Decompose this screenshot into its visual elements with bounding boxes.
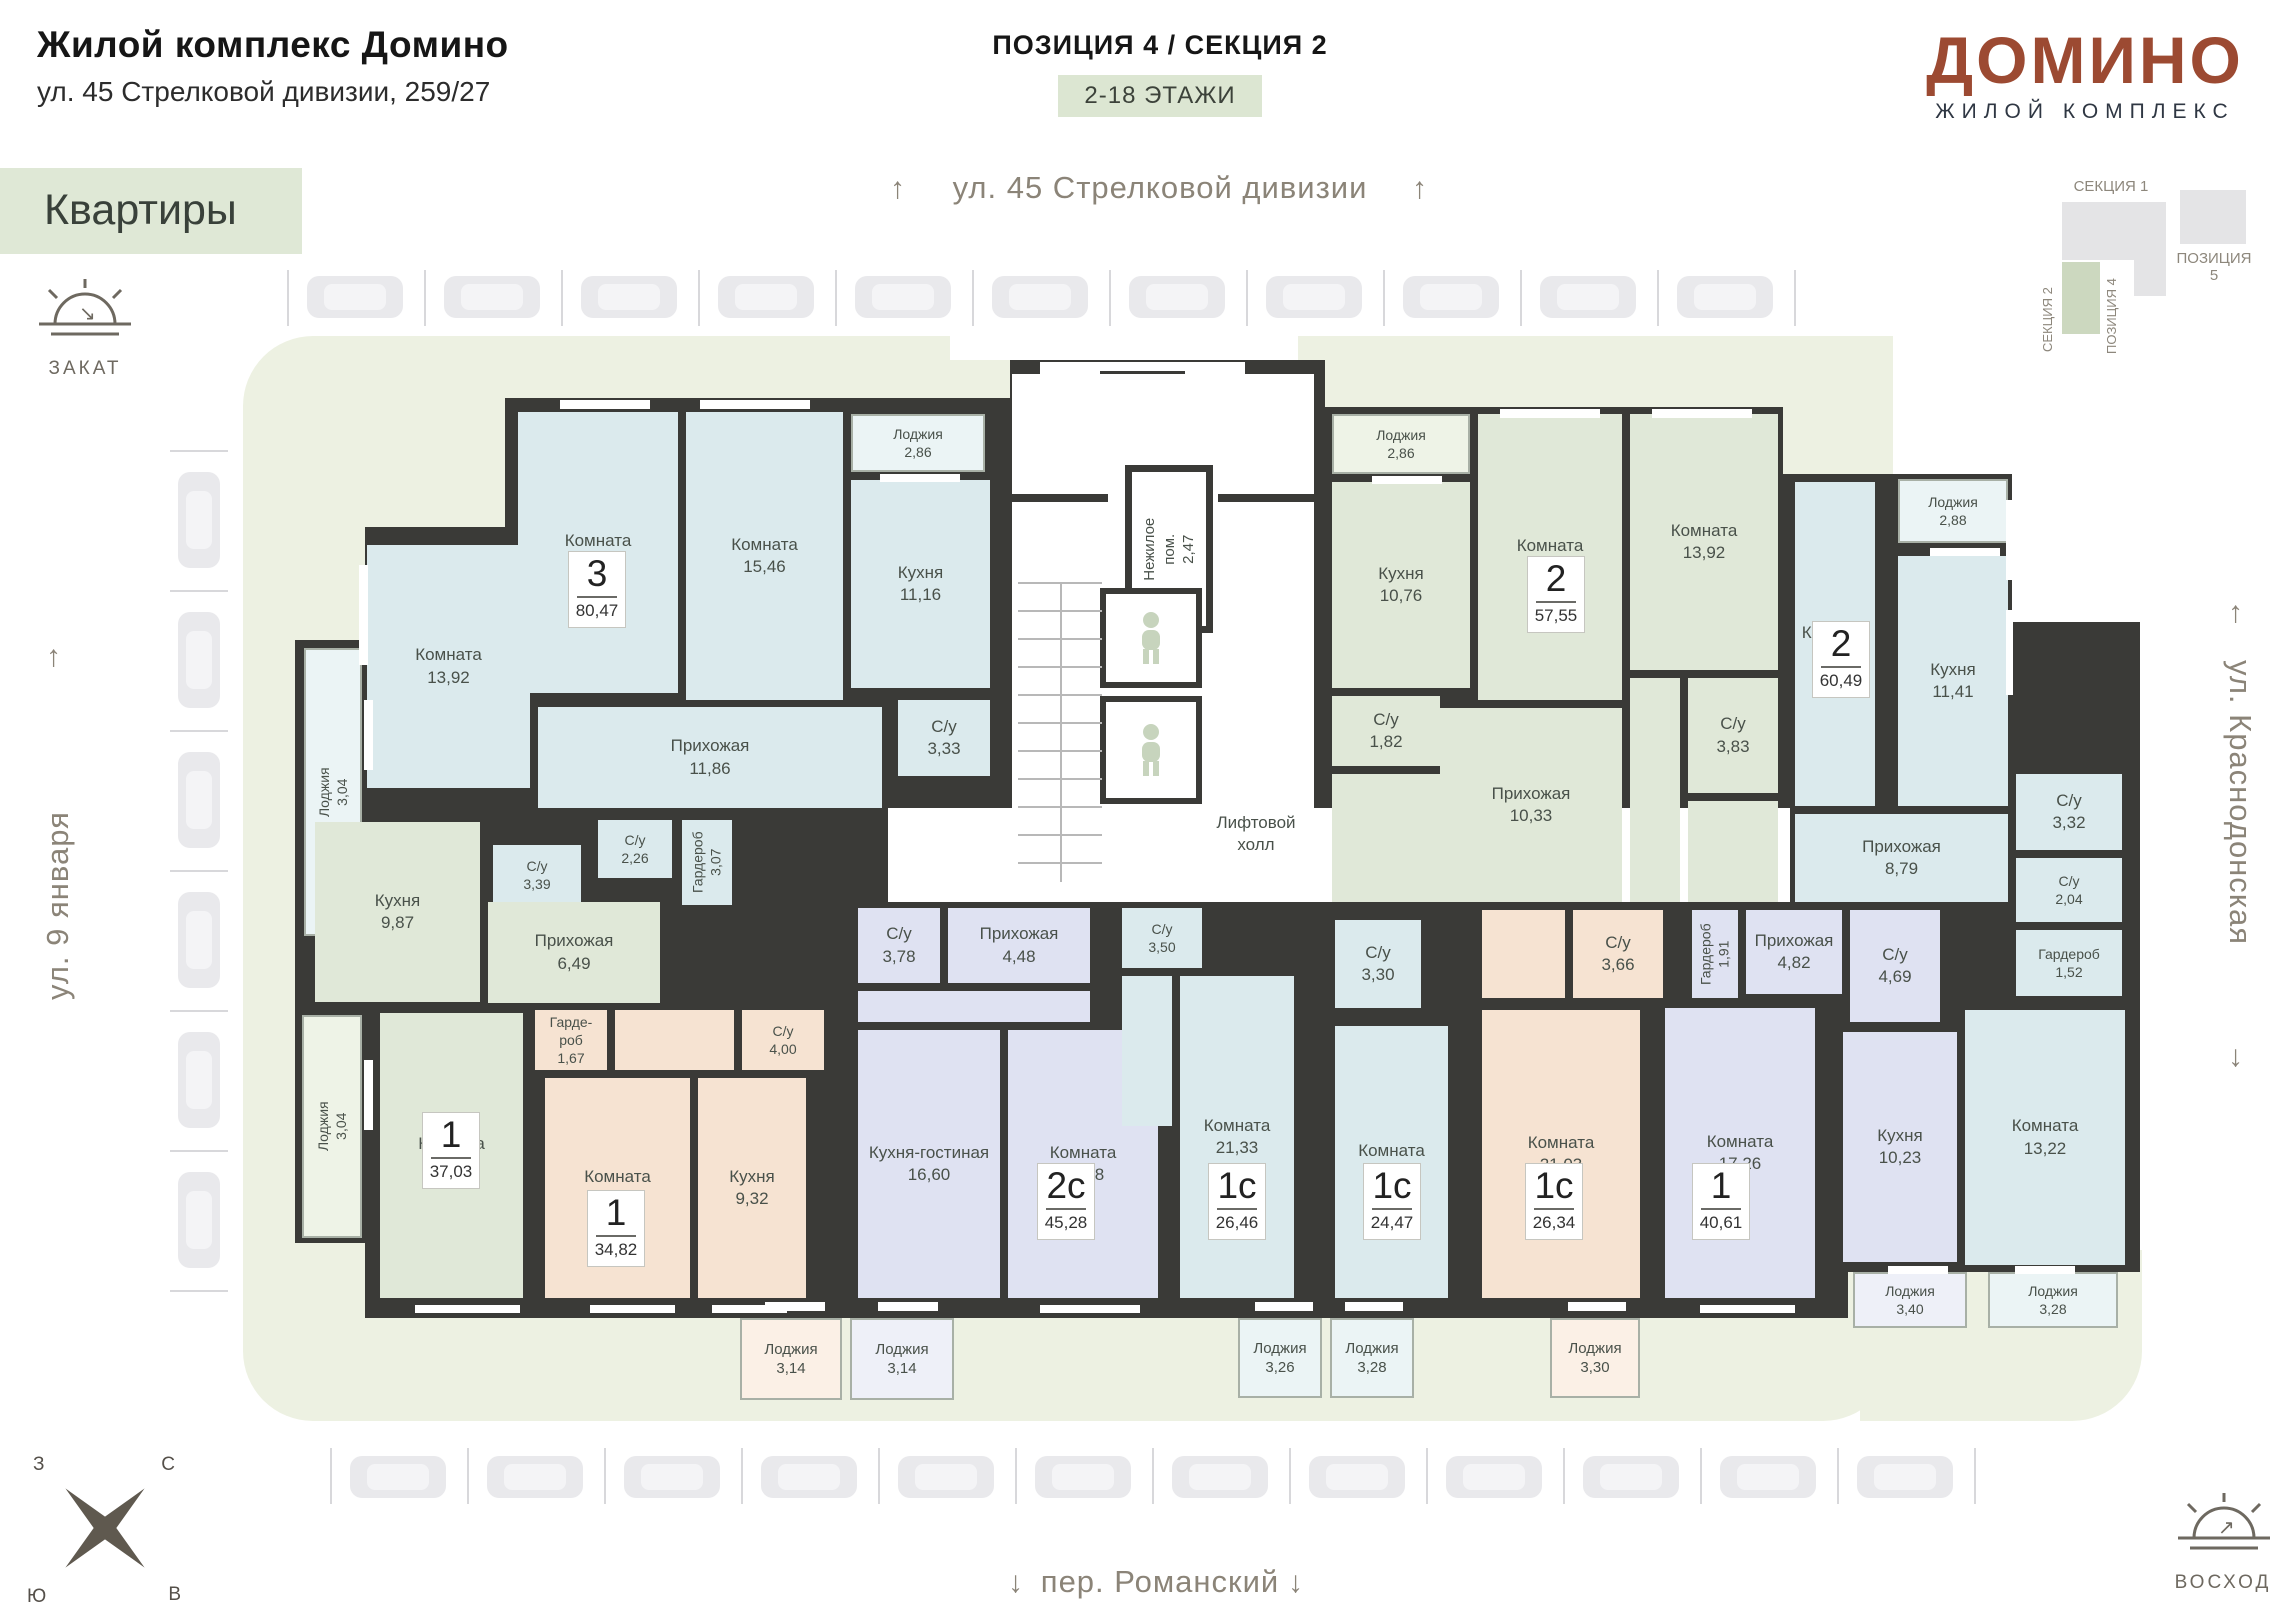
non-residential-area: 2,47	[1179, 512, 1199, 586]
room-label: Кухня 11,41	[1930, 659, 1976, 703]
apartment-area: 57,55	[1528, 606, 1584, 626]
room[interactable]: Гардероб 3,07	[682, 820, 732, 905]
room-label: С/у 3,33	[927, 716, 960, 760]
room[interactable]: Кухня 11,16	[851, 480, 990, 688]
room[interactable]	[615, 1010, 734, 1070]
window	[1500, 409, 1600, 418]
room[interactable]: Прихожая 8,79	[1795, 814, 2008, 902]
car-icon	[178, 472, 220, 568]
room-label: Комната 21,33	[1204, 1115, 1271, 1159]
apartment-area: 40,61	[1693, 1213, 1749, 1233]
room[interactable]: Лоджия 3,28	[1988, 1272, 2118, 1328]
parking-divider	[698, 270, 700, 326]
compass-icon: З С Ю В	[25, 1448, 185, 1608]
room[interactable]: Прихожая 4,48	[948, 908, 1090, 983]
non-residential-label: Нежилое пом.	[1140, 512, 1179, 586]
parking-divider	[1520, 270, 1522, 326]
car-icon	[487, 1456, 583, 1498]
room[interactable]: Лоджия 3,30	[1550, 1318, 1640, 1398]
elevator-hall-label: Лифтовой холл	[1198, 812, 1314, 856]
parking-divider	[1109, 270, 1111, 326]
room-label: Лоджия 3,28	[1345, 1339, 1398, 1378]
room-label: С/у 4,69	[1878, 944, 1911, 988]
room-label: С/у 2,26	[621, 831, 648, 867]
room[interactable]: Гардероб 1,52	[2016, 930, 2122, 996]
room-label: Гарде- роб 1,67	[550, 1013, 593, 1068]
divider	[577, 596, 617, 598]
car-icon	[1172, 1456, 1268, 1498]
sunset-icon: ↘	[35, 278, 135, 352]
room[interactable]: Кухня 10,76	[1332, 482, 1470, 688]
parking-divider	[1289, 1448, 1291, 1504]
room-label: Гардероб 1,52	[2038, 945, 2100, 981]
window	[364, 1060, 373, 1130]
room[interactable]: С/у 1,82	[1332, 696, 1440, 766]
room-label: Прихожая 11,86	[671, 735, 750, 779]
room[interactable]: Прихожая 11,86	[538, 707, 882, 808]
window	[1040, 1305, 1140, 1313]
car-icon	[1540, 276, 1636, 318]
room-label: С/у 3,50	[1148, 920, 1175, 956]
apartment-area: 60,49	[1813, 671, 1869, 691]
car-icon	[178, 1032, 220, 1128]
window	[1185, 362, 1245, 374]
sunrise-label: ВОСХОД	[2158, 1572, 2288, 1594]
room[interactable]	[1630, 678, 1680, 902]
sunset-label: ЗАКАТ	[20, 358, 150, 380]
window	[1040, 362, 1100, 374]
car-icon	[178, 1172, 220, 1268]
room-label: Прихожая 4,48	[980, 923, 1059, 967]
site-plan-section2-label: СЕКЦИЯ 2	[2040, 262, 2055, 352]
room-label: Комната 15,46	[731, 534, 798, 578]
parking-divider	[1700, 1448, 1702, 1504]
room-label: Кухня 9,87	[375, 890, 421, 934]
room-label: С/у 3,30	[1361, 942, 1394, 986]
parking-divider	[467, 1448, 469, 1504]
elevator	[1100, 588, 1202, 688]
window	[1568, 1302, 1626, 1311]
room[interactable]	[858, 991, 1090, 1022]
parking-divider	[1246, 270, 1248, 326]
apartment-badge[interactable]: 137,03	[422, 1112, 480, 1189]
room[interactable]: Лоджия 2,86	[851, 414, 985, 472]
room-label: Кухня-гостиная 16,60	[869, 1142, 989, 1186]
apartment-type: 1	[1693, 1167, 1749, 1206]
parking-divider	[1015, 1448, 1017, 1504]
window	[1888, 1266, 1948, 1274]
room[interactable]: Лоджия 3,40	[1853, 1272, 1967, 1328]
room-label: Кухня 10,76	[1378, 563, 1424, 607]
room-label: Лоджия 3,40	[1885, 1282, 1935, 1318]
room-label: Прихожая 4,82	[1755, 930, 1834, 974]
floor-plan-page: Жилой комплекс Домино ул. 45 Стрелковой …	[0, 0, 2291, 1620]
window	[700, 400, 810, 409]
parking-divider	[972, 270, 974, 326]
car-icon	[178, 612, 220, 708]
apartment-type: 1	[423, 1116, 479, 1155]
parking-divider	[878, 1448, 880, 1504]
compass-north: С	[161, 1454, 175, 1476]
room[interactable]: С/у 3,66	[1573, 910, 1663, 998]
apartment-area: 26,34	[1526, 1213, 1582, 1233]
parking-divider	[170, 870, 228, 872]
parking-divider	[287, 270, 289, 326]
divider	[1821, 666, 1861, 668]
divider	[1372, 1208, 1412, 1210]
room[interactable]: Комната 17,26	[1665, 1008, 1815, 1298]
window	[2006, 500, 2013, 580]
room[interactable]: С/у 3,39	[493, 845, 581, 905]
room-label: Лоджия 3,14	[764, 1340, 817, 1379]
room-label: Лоджия 3,04	[314, 1099, 350, 1155]
room[interactable]: С/у 3,83	[1688, 678, 1778, 793]
room[interactable]: Кухня 9,32	[698, 1078, 806, 1298]
compass-south: Ю	[27, 1586, 46, 1608]
room[interactable]: С/у 2,26	[598, 820, 672, 878]
room-label: Лоджия 3,04	[315, 765, 351, 819]
room-label: Кухня 10,23	[1877, 1125, 1923, 1169]
apartment-badge[interactable]: 1с26,34	[1525, 1163, 1583, 1240]
parking-divider	[170, 1150, 228, 1152]
room[interactable]: С/у 3,33	[898, 700, 990, 776]
window	[2015, 1266, 2075, 1274]
room-label: С/у 4,00	[769, 1022, 796, 1058]
apartment-area: 45,28	[1038, 1213, 1094, 1233]
window	[560, 400, 650, 409]
car-icon	[761, 1456, 857, 1498]
room[interactable]: Комната 13,22	[1965, 1010, 2125, 1265]
parking-divider	[1974, 1448, 1976, 1504]
parking-divider	[170, 1290, 228, 1292]
parking-divider	[561, 270, 563, 326]
room[interactable]: С/у 2,04	[2016, 858, 2122, 922]
parking-divider	[1563, 1448, 1565, 1504]
parking-divider	[1657, 270, 1659, 326]
room[interactable]: Прихожая 10,33	[1440, 708, 1622, 902]
site-plan-current-block[interactable]	[2062, 262, 2100, 334]
apartment-badge[interactable]: 140,61	[1692, 1163, 1750, 1240]
car-icon	[178, 892, 220, 988]
car-icon	[718, 276, 814, 318]
divider	[596, 1235, 636, 1237]
room-label: Лоджия 3,30	[1568, 1339, 1621, 1378]
room[interactable]: Лоджия 3,04	[302, 1015, 362, 1238]
apartment-badge[interactable]: 134,82	[587, 1190, 645, 1267]
site-plan-position5-block	[2180, 190, 2246, 244]
window	[1652, 409, 1752, 418]
room[interactable]: Комната 21,03	[1482, 1010, 1640, 1298]
room-label: Гардероб 1,91	[1697, 923, 1733, 985]
car-icon	[350, 1456, 446, 1498]
car-icon	[444, 276, 540, 318]
apartment-badge[interactable]: 257,55	[1527, 556, 1585, 633]
room-label: Гардероб 3,07	[689, 832, 725, 894]
room-label: С/у 3,78	[882, 923, 915, 967]
svg-text:↗: ↗	[2218, 1517, 2235, 1539]
car-icon	[992, 276, 1088, 318]
window	[2006, 610, 2013, 695]
room-label: Лоджия 2,86	[893, 425, 943, 461]
room-label: Лоджия 3,26	[1253, 1339, 1306, 1378]
car-icon	[1129, 276, 1225, 318]
apartment-badge[interactable]: 1с26,46	[1208, 1163, 1266, 1240]
room[interactable]: С/у 4,69	[1850, 910, 1940, 1022]
room[interactable]: Кухня 11,41	[1898, 556, 2008, 806]
room-label: С/у 3,66	[1601, 932, 1634, 976]
divider	[1536, 601, 1576, 603]
window	[364, 700, 373, 770]
room[interactable]: Лоджия 3,28	[1330, 1318, 1414, 1398]
divider	[1534, 1208, 1574, 1210]
room[interactable]: С/у 3,30	[1335, 920, 1421, 1008]
person-icon	[1133, 611, 1169, 665]
car-icon	[898, 1456, 994, 1498]
window	[1345, 1302, 1403, 1311]
room-label: Комната 13,92	[1671, 520, 1738, 564]
apartment-type: 2	[1528, 560, 1584, 599]
window	[765, 1302, 825, 1311]
room[interactable]: Прихожая 6,49	[488, 902, 660, 1003]
wall	[1218, 494, 1314, 502]
room-label: С/у 2,04	[2055, 872, 2082, 908]
room-label: Лоджия 2,86	[1376, 426, 1426, 462]
window	[359, 565, 368, 665]
parking-divider	[170, 730, 228, 732]
window	[415, 1305, 520, 1313]
car-icon	[581, 276, 677, 318]
apartment-type: 2	[1813, 625, 1869, 664]
parking-divider	[1426, 1448, 1428, 1504]
room[interactable]: Лоджия 3,14	[740, 1318, 842, 1400]
room[interactable]: Лоджия 3,26	[1238, 1318, 1322, 1398]
car-icon	[1266, 276, 1362, 318]
car-icon	[307, 276, 403, 318]
parking-divider	[170, 1010, 228, 1012]
room[interactable]	[1332, 774, 1440, 902]
apartment-badge[interactable]: 1с24,47	[1363, 1163, 1421, 1240]
room[interactable]: Кухня 9,87	[315, 822, 480, 1002]
room[interactable]: Комната 21,33	[1180, 976, 1294, 1298]
site-plan-position5-label: ПОЗИЦИЯ 5	[2172, 250, 2256, 284]
room[interactable]	[1482, 910, 1565, 998]
window	[878, 1302, 938, 1311]
room-label: Лоджия 2,88	[1928, 493, 1978, 529]
room[interactable]: Лоджия 2,88	[1898, 479, 2008, 543]
divider	[431, 1157, 471, 1159]
room[interactable]: Кухня-гостиная 16,60	[858, 1030, 1000, 1298]
room[interactable]: Комната 19,53	[1335, 1026, 1448, 1298]
room[interactable]: Комната 15,46	[686, 412, 843, 700]
window	[1372, 476, 1442, 484]
room[interactable]: Прихожая 4,82	[1746, 910, 1842, 994]
room[interactable]	[1688, 801, 1778, 902]
room-label: Кухня 9,32	[729, 1166, 775, 1210]
car-icon	[178, 752, 220, 848]
window	[880, 474, 960, 482]
divider	[1046, 1208, 1086, 1210]
room[interactable]: Лоджия 2,86	[1332, 414, 1470, 474]
room[interactable]: Комната 13,92	[1630, 414, 1778, 670]
stairs	[1018, 582, 1102, 882]
window	[1700, 1305, 1795, 1313]
parking-divider	[170, 450, 228, 452]
room-label: Лоджия 3,28	[2028, 1282, 2078, 1318]
apartment-type: 1с	[1364, 1167, 1420, 1206]
window	[1255, 1302, 1313, 1311]
parking-divider	[604, 1448, 606, 1504]
parking-divider	[330, 1448, 332, 1504]
svg-text:↘: ↘	[79, 303, 96, 325]
room[interactable]: Гардероб 1,91	[1692, 910, 1738, 998]
room-label: Лоджия 3,14	[875, 1340, 928, 1379]
room-label: Комната 13,92	[415, 644, 482, 688]
room-label: С/у 3,32	[2052, 790, 2085, 834]
room-label: С/у 3,83	[1716, 713, 1749, 757]
apartment-badge[interactable]: 260,49	[1812, 621, 1870, 698]
apartment-type: 3	[569, 555, 625, 594]
room[interactable]: Лоджия 3,14	[850, 1318, 954, 1400]
apartment-badge[interactable]: 2с45,28	[1037, 1163, 1095, 1240]
apartment-area: 80,47	[569, 601, 625, 621]
apartment-area: 26,46	[1209, 1213, 1265, 1233]
window	[590, 1305, 675, 1313]
room-label: Комната 13,22	[2012, 1115, 2079, 1159]
room-label: С/у 1,82	[1369, 709, 1402, 753]
elevator	[1100, 696, 1202, 804]
room[interactable]	[1122, 976, 1172, 1126]
divider	[1217, 1208, 1257, 1210]
room-label: Прихожая 8,79	[1862, 836, 1941, 880]
room-label: С/у 3,39	[523, 857, 550, 893]
parking-divider	[424, 270, 426, 326]
room[interactable]: Комната 13,92	[367, 545, 530, 788]
parking-divider	[835, 270, 837, 326]
room[interactable]: С/у 3,32	[2016, 774, 2122, 850]
parking-divider	[1152, 1448, 1154, 1504]
car-icon	[1583, 1456, 1679, 1498]
car-icon	[1677, 276, 1773, 318]
parking-divider	[741, 1448, 743, 1504]
apartment-badge[interactable]: 380,47	[568, 551, 626, 628]
site-plan-position4-label: ПОЗИЦИЯ 4	[2104, 258, 2119, 354]
window	[1930, 548, 2000, 556]
apartment-type: 1с	[1526, 1167, 1582, 1206]
car-icon	[1035, 1456, 1131, 1498]
site-plan-section1-label: СЕКЦИЯ 1	[2056, 178, 2166, 195]
site-plan-block	[2134, 260, 2166, 296]
room[interactable]: С/у 4,00	[742, 1010, 824, 1070]
parking-divider	[1794, 270, 1796, 326]
room-label: Кухня 11,16	[898, 562, 944, 606]
parking-divider	[1837, 1448, 1839, 1504]
sunrise-icon: ↗	[2174, 1492, 2274, 1566]
apartment-area: 37,03	[423, 1162, 479, 1182]
site-plan-section1-block	[2062, 202, 2166, 260]
apartment-area: 24,47	[1364, 1213, 1420, 1233]
apartment-type: 1с	[1209, 1167, 1265, 1206]
car-icon	[1720, 1456, 1816, 1498]
room[interactable]: С/у 3,78	[858, 908, 940, 983]
parking-divider	[170, 590, 228, 592]
divider	[1701, 1208, 1741, 1210]
car-icon	[1403, 276, 1499, 318]
compass-west: З	[33, 1454, 44, 1476]
room[interactable]: Кухня 10,23	[1843, 1032, 1957, 1262]
room-label: Прихожая 6,49	[535, 930, 614, 974]
car-icon	[624, 1456, 720, 1498]
room-label: Прихожая 10,33	[1492, 783, 1571, 827]
car-icon	[1309, 1456, 1405, 1498]
car-icon	[855, 276, 951, 318]
room[interactable]: Гарде- роб 1,67	[535, 1010, 607, 1070]
person-icon	[1133, 723, 1169, 777]
room[interactable]: С/у 3,50	[1122, 908, 1202, 968]
apartment-type: 1	[588, 1194, 644, 1233]
car-icon	[1446, 1456, 1542, 1498]
compass-east: В	[168, 1584, 181, 1606]
car-icon	[1857, 1456, 1953, 1498]
wall	[1012, 494, 1108, 502]
parking-divider	[1383, 270, 1385, 326]
apartment-area: 34,82	[588, 1240, 644, 1260]
apartment-type: 2с	[1038, 1167, 1094, 1206]
